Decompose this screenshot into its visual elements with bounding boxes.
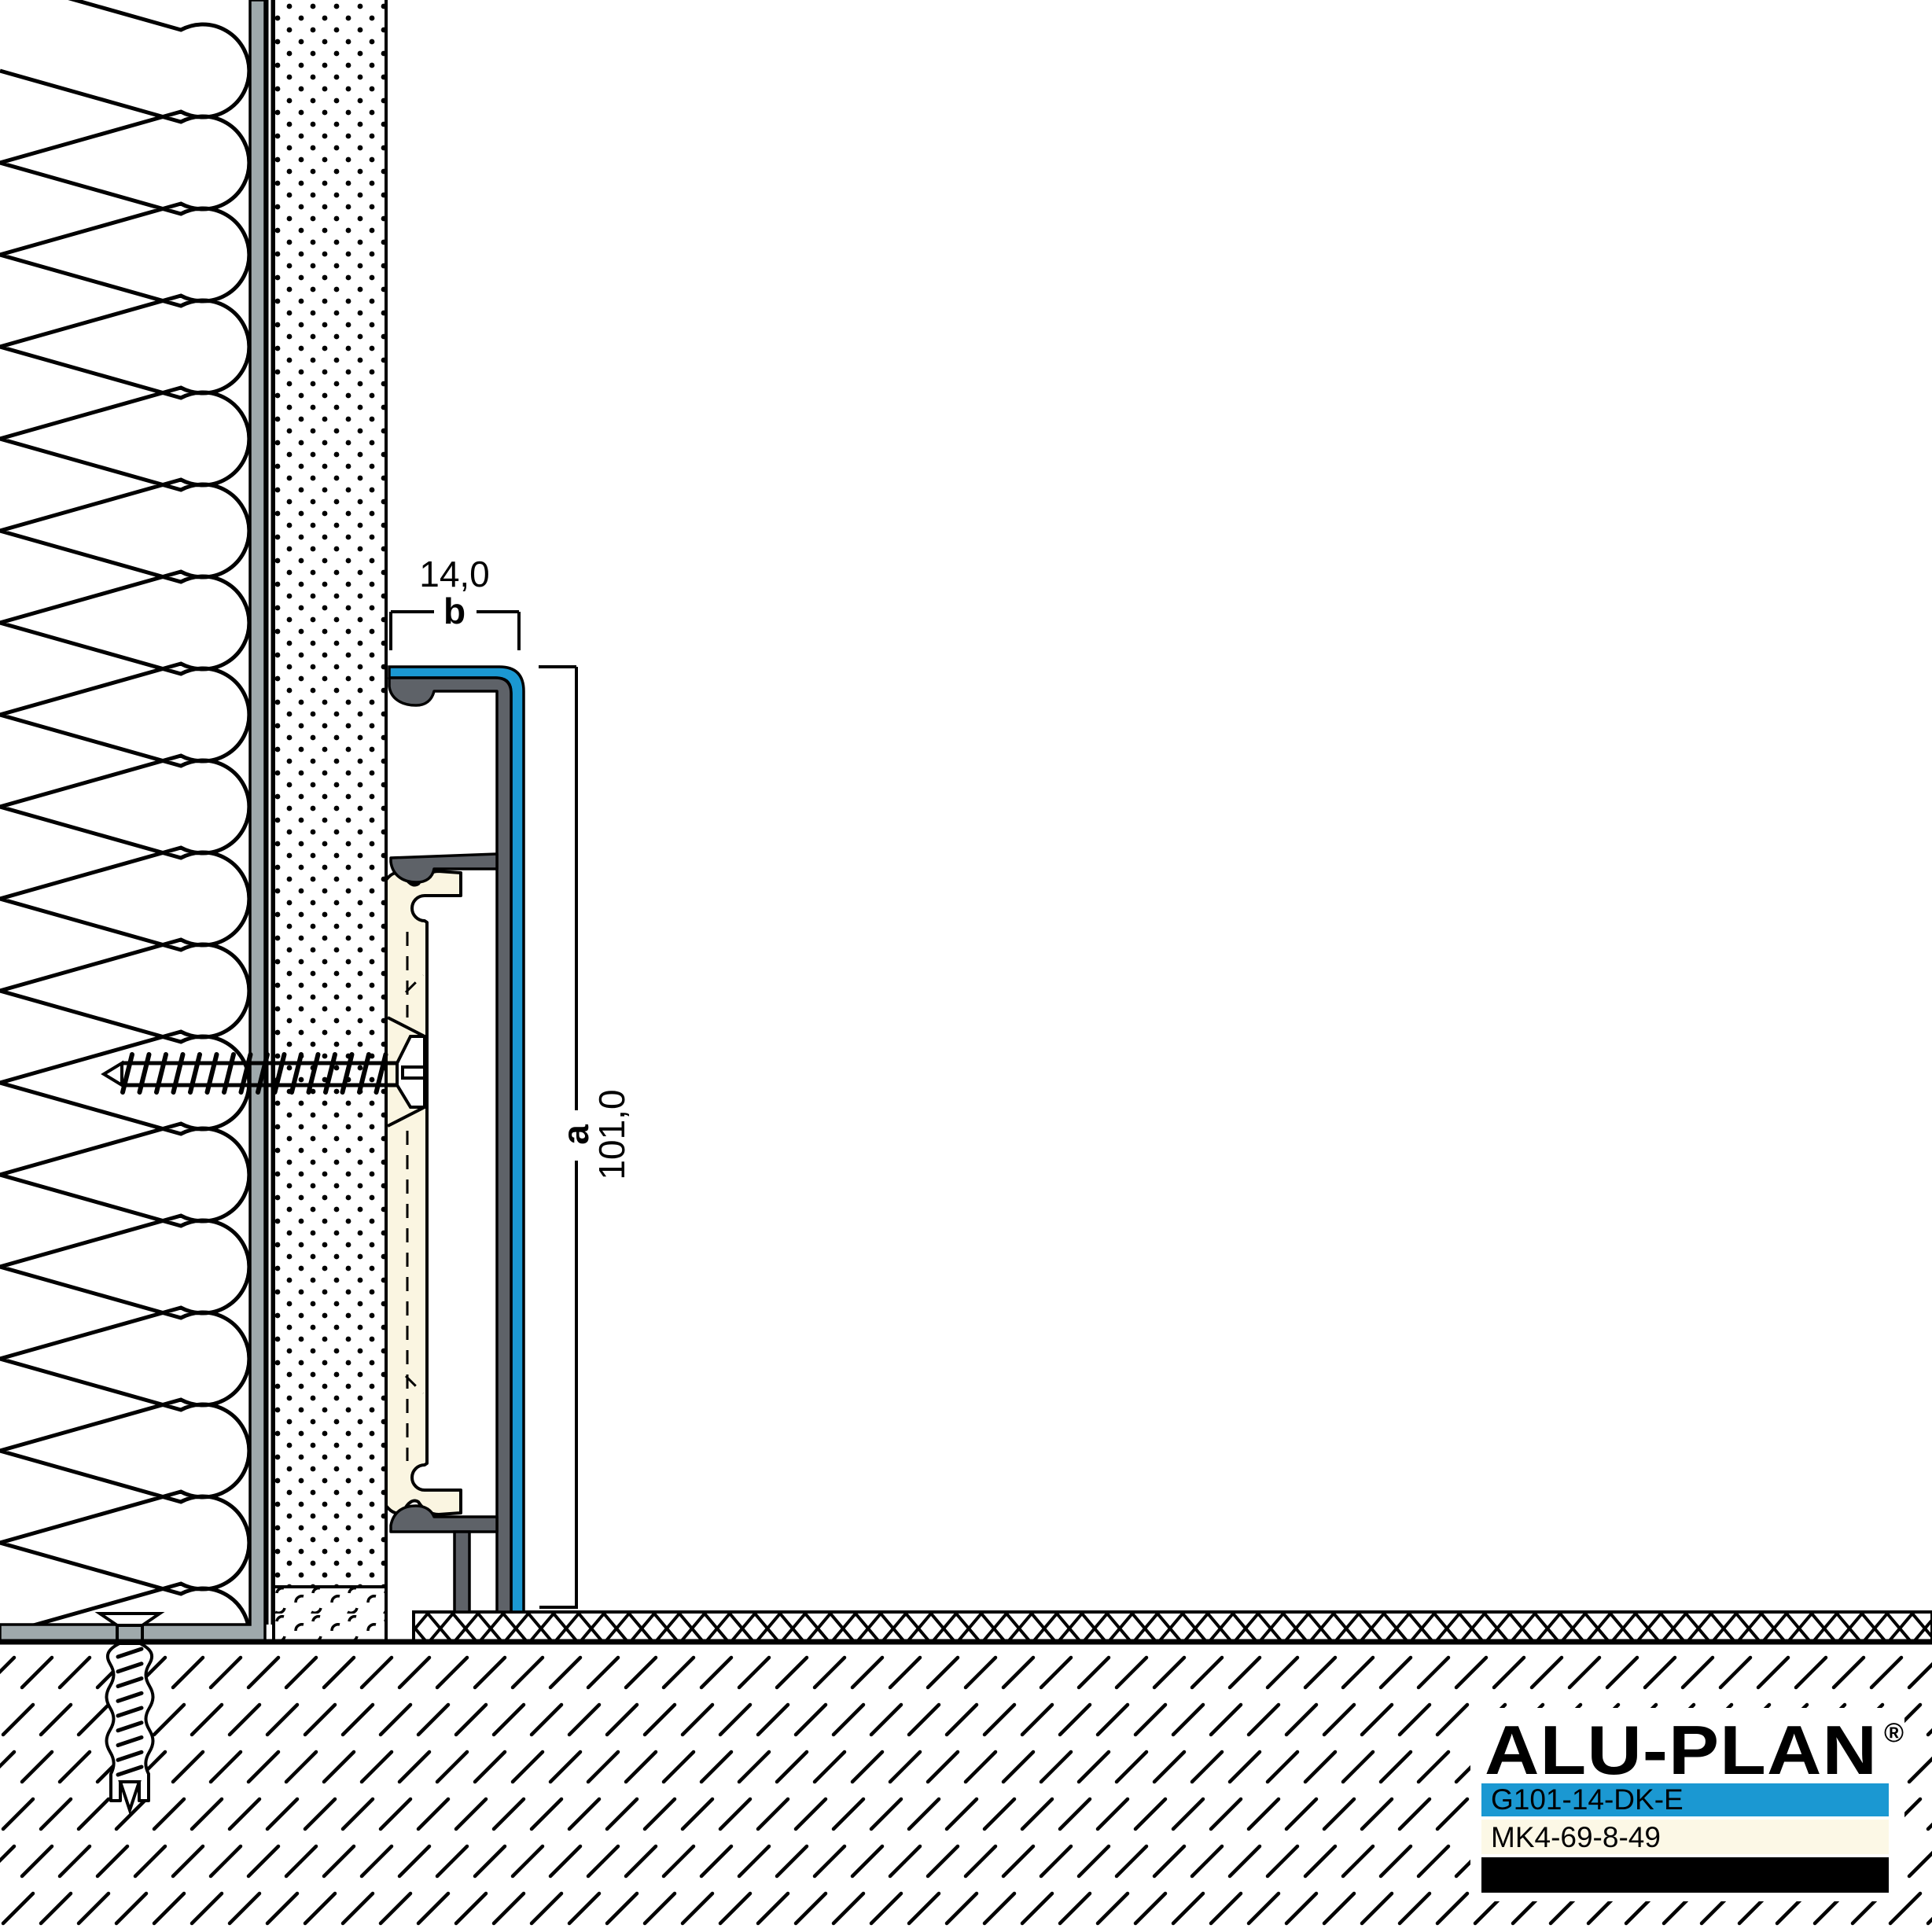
floor-covering-strip: [414, 1612, 1932, 1642]
dimension-width-label: b: [443, 591, 466, 631]
dimension-height-value: 101,0: [591, 1089, 632, 1179]
screw-tip: [104, 1063, 122, 1085]
dimension-width-value: 14,0: [419, 554, 490, 594]
registered-trademark-icon: ®: [1884, 1718, 1904, 1748]
product-code-primary: G101-14-DK-E: [1491, 1783, 1684, 1816]
section-drawing: 14,0 b a 101,0 ALU-PLAN ® G101-14-DK-E M…: [0, 0, 1932, 1932]
title-block: ALU-PLAN ® G101-14-DK-E MK4-69-8-49 APT-…: [1470, 1708, 1904, 1901]
brand-logo: ALU-PLAN: [1485, 1711, 1878, 1789]
wall-insulation-hatch: [0, 0, 249, 1819]
wall-board-joint-lines: [267, 0, 272, 1625]
profile-support-leg: [454, 1532, 469, 1612]
technical-drawing-page: 14,0 b a 101,0 ALU-PLAN ® G101-14-DK-E M…: [0, 0, 1932, 1932]
dimension-height-label: a: [555, 1124, 596, 1145]
product-code-tertiary: APT-PVC3: [1491, 1860, 1632, 1892]
screw-drive-slot: [403, 1067, 425, 1078]
wall-board-layer: [274, 0, 386, 1642]
mounting-carrier-profile: [386, 871, 461, 1514]
product-code-secondary: MK4-69-8-49: [1491, 1821, 1661, 1853]
